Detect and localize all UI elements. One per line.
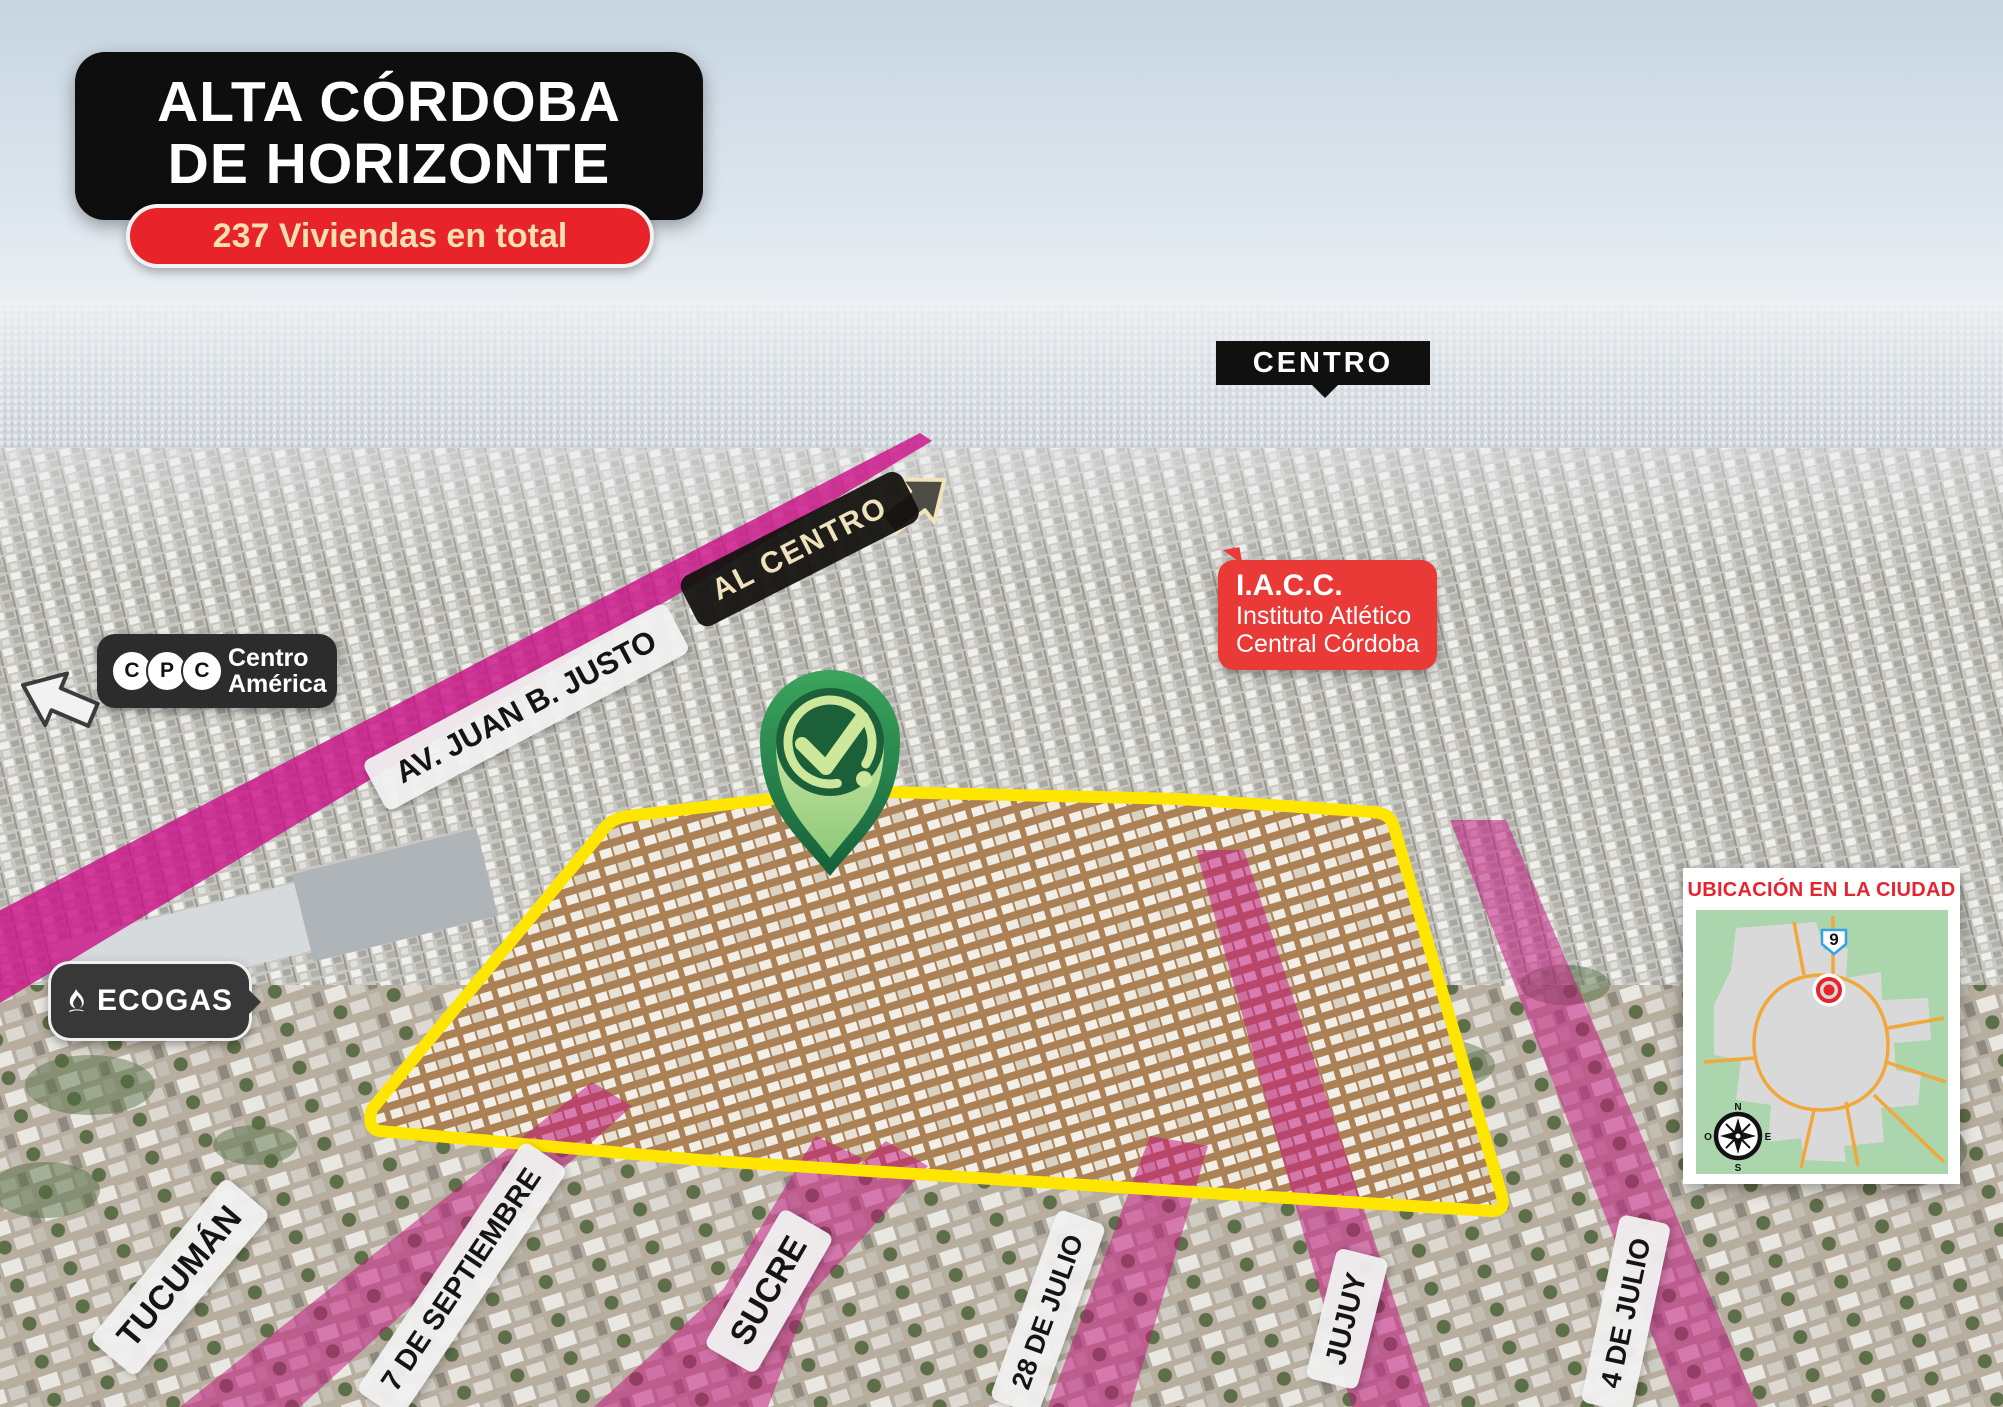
minimap-map: 9 N E S O [1696,910,1948,1174]
iacc-badge: I.A.C.C. Instituto Atlético Central Córd… [1218,560,1437,670]
cpc-label: Centro América [228,645,327,698]
cpc-centro-america-badge: C P C Centro América [97,634,337,708]
svg-text:S: S [1734,1163,1741,1174]
ecogas-flame-icon [67,975,85,1027]
city-location-minimap: UBICACIÓN EN LA CIUDAD 9 [1683,868,1960,1184]
project-title-line2: DE HORIZONTE [75,134,703,196]
svg-text:E: E [1764,1132,1771,1143]
location-marker-icon [1816,977,1842,1003]
svg-text:9: 9 [1829,930,1838,949]
project-title-line1: ALTA CÓRDOBA [75,72,703,134]
project-title-card: ALTA CÓRDOBA DE HORIZONTE [75,52,703,220]
flyer-canvas: ALTA CÓRDOBA DE HORIZONTE 237 Viviendas … [0,0,2003,1407]
units-count-badge: 237 Viviendas en total [126,204,654,268]
svg-text:N: N [1734,1102,1741,1113]
minimap-title: UBICACIÓN EN LA CIUDAD [1683,868,1960,910]
centro-label: CENTRO [1216,341,1430,385]
ecogas-badge: ECOGAS [48,961,252,1041]
units-count-label: 237 Viviendas en total [213,217,568,256]
svg-text:O: O [1704,1132,1712,1143]
cpc-logo-icon: C P C [111,650,216,692]
